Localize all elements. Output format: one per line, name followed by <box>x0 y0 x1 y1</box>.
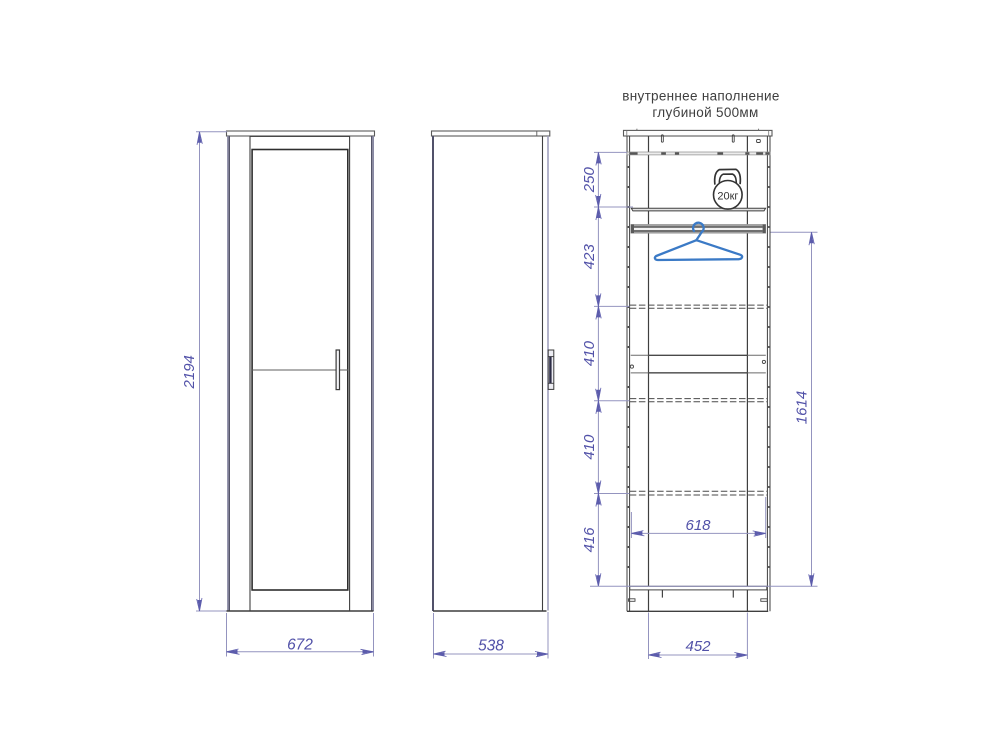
svg-text:410: 410 <box>581 434 598 460</box>
svg-text:423: 423 <box>581 244 598 270</box>
svg-text:внутреннее наполнение: внутреннее наполнение <box>622 89 779 104</box>
svg-text:250: 250 <box>581 167 598 194</box>
svg-text:410: 410 <box>581 340 598 366</box>
svg-text:1614: 1614 <box>794 391 811 424</box>
svg-text:538: 538 <box>478 637 504 654</box>
svg-text:672: 672 <box>287 636 313 653</box>
svg-text:416: 416 <box>581 527 598 553</box>
svg-text:2194: 2194 <box>181 355 198 389</box>
svg-text:20кг: 20кг <box>717 190 738 202</box>
svg-text:глубиной 500мм: глубиной 500мм <box>652 105 758 120</box>
svg-text:452: 452 <box>685 638 711 655</box>
svg-text:618: 618 <box>685 517 711 534</box>
